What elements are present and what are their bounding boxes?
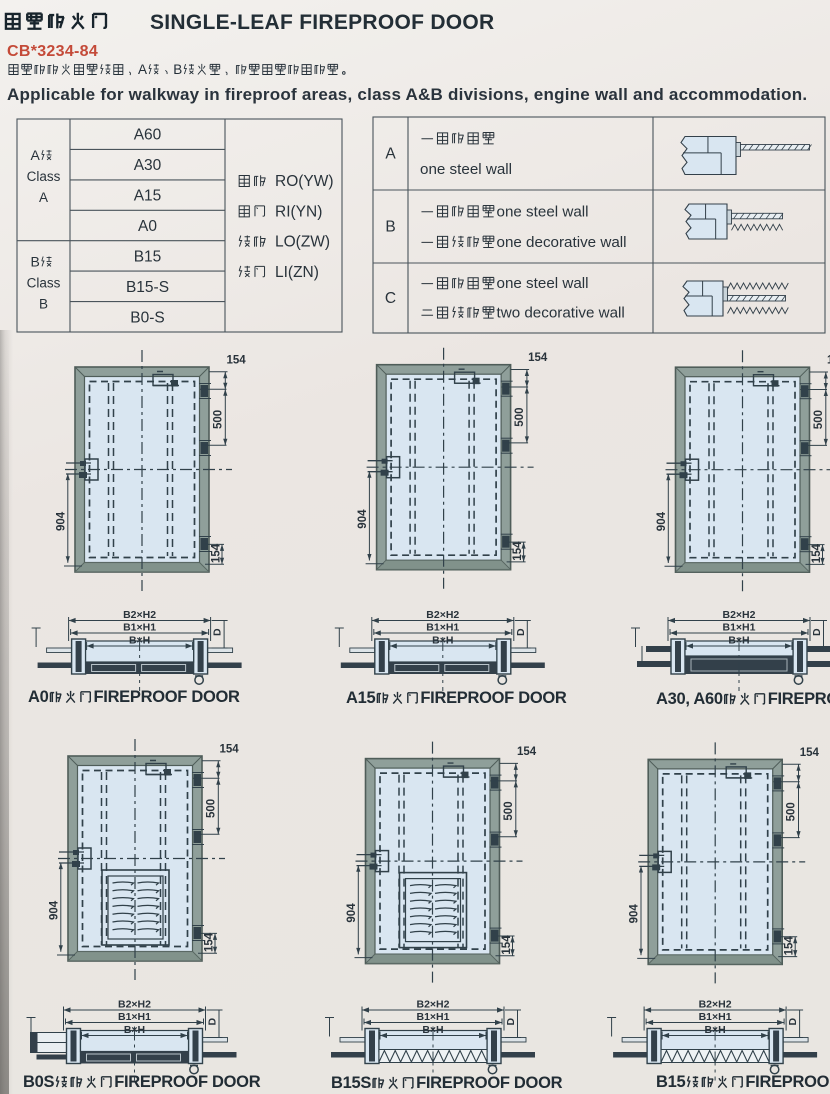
svg-text:500: 500: [503, 801, 515, 820]
svg-text:B0-S: B0-S: [130, 309, 164, 326]
svg-text:904: 904: [346, 903, 358, 923]
svg-text:one steel wall: one steel wall: [497, 275, 589, 292]
svg-text:B: B: [31, 253, 40, 269]
svg-text:B15: B15: [656, 1073, 685, 1091]
svg-text:154: 154: [517, 746, 537, 758]
svg-text:C: C: [385, 290, 396, 307]
svg-text:A: A: [138, 62, 147, 77]
svg-text:B: B: [39, 296, 48, 311]
svg-text:B0S: B0S: [23, 1073, 54, 1091]
svg-text:A0: A0: [28, 688, 49, 706]
svg-text:B×H: B×H: [124, 1024, 145, 1036]
svg-text:B2×H2: B2×H2: [723, 609, 756, 621]
svg-text:500: 500: [813, 410, 825, 429]
svg-text:B×H: B×H: [728, 635, 749, 647]
svg-text:154: 154: [211, 543, 223, 563]
svg-text:154: 154: [204, 932, 216, 952]
svg-text:904: 904: [629, 904, 641, 924]
svg-text:D: D: [505, 1018, 517, 1026]
svg-text:B×H: B×H: [432, 635, 453, 647]
svg-text:B15-S: B15-S: [126, 279, 169, 296]
svg-text:B2×H2: B2×H2: [426, 609, 459, 621]
svg-text:FIREPROOF D: FIREPROOF D: [768, 690, 830, 708]
svg-text:500: 500: [786, 802, 798, 821]
svg-text:CB*3234-84: CB*3234-84: [7, 43, 98, 60]
svg-text:154: 154: [501, 935, 513, 955]
svg-text:D: D: [207, 1018, 219, 1026]
svg-text:B15: B15: [134, 248, 162, 265]
svg-text:A: A: [39, 190, 48, 205]
svg-text:FIREPROOF DOOR: FIREPROOF DOOR: [416, 1074, 563, 1092]
svg-text:LI(ZN): LI(ZN): [275, 264, 319, 281]
svg-text:D: D: [212, 628, 224, 636]
svg-text:904: 904: [49, 900, 61, 920]
svg-text:SINGLE-LEAF FIREPROOF DOOR: SINGLE-LEAF FIREPROOF DOOR: [150, 11, 494, 34]
svg-text:B1×H1: B1×H1: [723, 622, 756, 634]
svg-text:154: 154: [512, 541, 524, 561]
svg-text:one steel wall: one steel wall: [497, 203, 589, 220]
svg-text:A30, A60: A30, A60: [656, 690, 723, 708]
svg-text:154: 154: [220, 744, 240, 756]
svg-text:B1×H1: B1×H1: [699, 1011, 732, 1023]
svg-text:FIREPROOF DOOR: FIREPROOF DOOR: [114, 1073, 261, 1091]
svg-text:500: 500: [206, 799, 218, 818]
svg-text:B15S: B15S: [331, 1074, 371, 1092]
svg-text:500: 500: [514, 408, 526, 427]
svg-text:154: 154: [528, 352, 548, 364]
svg-text:two decorative wall: two decorative wall: [497, 305, 625, 322]
svg-text:A0: A0: [138, 218, 157, 235]
svg-text:D: D: [787, 1018, 799, 1026]
svg-text:B2×H2: B2×H2: [699, 999, 732, 1011]
svg-text:Applicable for walkway in fire: Applicable for walkway in fireproof area…: [7, 85, 807, 104]
svg-text:154: 154: [811, 543, 823, 563]
svg-text:B1×H1: B1×H1: [417, 1011, 450, 1023]
svg-text:Class: Class: [27, 169, 61, 184]
svg-text:A15: A15: [346, 689, 375, 707]
svg-text:B1×H1: B1×H1: [118, 1011, 151, 1023]
svg-text:B2×H2: B2×H2: [123, 609, 156, 621]
svg-text:154: 154: [784, 936, 796, 956]
svg-text:RI(YN): RI(YN): [275, 203, 322, 220]
svg-text:B2×H2: B2×H2: [118, 999, 151, 1011]
svg-text:FIREPROOF DOO: FIREPROOF DOO: [745, 1073, 830, 1091]
svg-text:904: 904: [656, 511, 668, 531]
svg-text:A15: A15: [134, 188, 162, 205]
svg-text:D: D: [515, 628, 527, 636]
svg-text:B1×H1: B1×H1: [123, 622, 156, 634]
svg-text:B×H: B×H: [704, 1024, 725, 1036]
svg-text:B×H: B×H: [129, 635, 150, 647]
svg-text:FIREPROOF DOOR: FIREPROOF DOOR: [94, 688, 241, 706]
svg-text:904: 904: [56, 511, 68, 531]
svg-text:A: A: [385, 146, 396, 163]
svg-text:FIREPROOF DOOR: FIREPROOF DOOR: [420, 689, 567, 707]
svg-text:A: A: [31, 147, 41, 163]
svg-text:D: D: [811, 628, 823, 636]
svg-text:B2×H2: B2×H2: [417, 999, 450, 1011]
svg-text:500: 500: [213, 410, 225, 429]
svg-text:A60: A60: [134, 127, 162, 144]
svg-text:one decorative wall: one decorative wall: [497, 234, 627, 251]
svg-text:904: 904: [357, 509, 369, 529]
svg-text:154: 154: [227, 355, 247, 367]
svg-text:LO(ZW): LO(ZW): [275, 234, 330, 251]
svg-text:Class: Class: [27, 275, 61, 290]
svg-text:B×H: B×H: [422, 1024, 443, 1036]
svg-text:154: 154: [800, 747, 820, 759]
svg-text:B1×H1: B1×H1: [426, 622, 459, 634]
svg-text:A30: A30: [134, 157, 162, 174]
svg-text:B: B: [173, 62, 182, 77]
svg-text:one steel wall: one steel wall: [420, 161, 512, 178]
svg-text:RO(YW): RO(YW): [275, 173, 334, 190]
svg-text:B: B: [385, 219, 395, 236]
